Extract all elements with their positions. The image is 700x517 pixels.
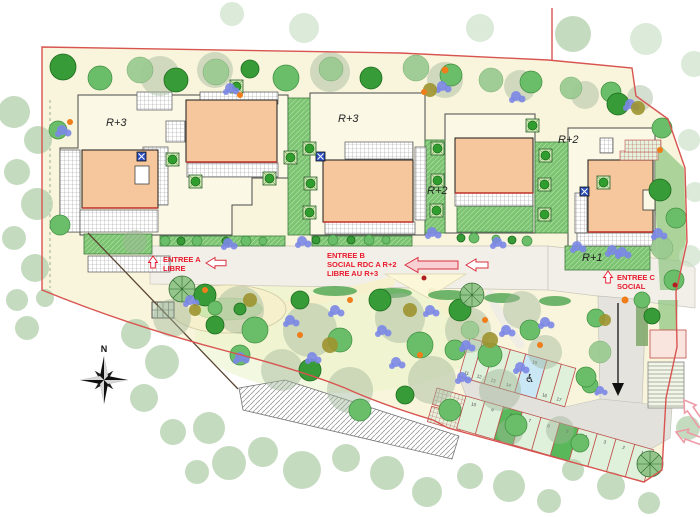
tree xyxy=(283,451,321,489)
tree xyxy=(599,314,611,326)
tree xyxy=(408,356,456,404)
tree xyxy=(164,68,188,92)
tree xyxy=(261,349,303,391)
tree xyxy=(493,470,525,502)
tree xyxy=(2,226,26,250)
tree xyxy=(248,437,278,467)
tree xyxy=(145,345,179,379)
tree xyxy=(160,236,170,246)
tree xyxy=(666,208,686,228)
tree xyxy=(241,236,251,246)
boundary-marker xyxy=(673,283,678,288)
site-plan-drawing: 11 12 13 14 15 16 17 ♿ 10 9 8 7 6 5 4 3 … xyxy=(0,0,700,517)
tree xyxy=(241,60,259,78)
tree xyxy=(630,23,662,55)
tree xyxy=(461,321,479,339)
tree xyxy=(328,235,338,245)
tree xyxy=(273,65,299,91)
tree xyxy=(189,304,201,316)
tree xyxy=(192,236,202,246)
tree xyxy=(571,434,589,452)
red-grid-strip xyxy=(620,151,658,160)
building-d-block xyxy=(455,138,533,193)
tree xyxy=(442,67,449,74)
tree xyxy=(482,332,498,348)
tree xyxy=(24,126,52,154)
annex-building xyxy=(650,330,686,358)
junction-marker xyxy=(422,276,427,281)
entrance-a-line1: ENTREE A xyxy=(163,255,201,264)
tree xyxy=(206,316,224,334)
tree xyxy=(15,316,39,340)
tree xyxy=(537,489,561,513)
tree xyxy=(651,237,673,259)
tree xyxy=(193,412,225,444)
tree xyxy=(649,179,671,201)
building-a-entry-notch xyxy=(135,166,149,184)
floor-label-c: R+3 xyxy=(338,113,359,125)
tree xyxy=(370,456,404,490)
tree xyxy=(243,293,257,307)
tree xyxy=(160,419,186,445)
red-grid-strip2 xyxy=(625,140,661,152)
tree xyxy=(622,297,629,304)
tree xyxy=(634,292,650,308)
tree xyxy=(360,67,382,89)
tree xyxy=(439,399,461,421)
tree xyxy=(522,236,532,246)
tree xyxy=(349,399,371,421)
tree xyxy=(555,16,591,52)
tree xyxy=(537,342,543,348)
tree xyxy=(21,254,49,282)
tree xyxy=(6,289,28,311)
tree xyxy=(185,460,209,484)
tree xyxy=(208,301,222,315)
entrance-c-line1: ENTREE C xyxy=(617,273,656,282)
tree xyxy=(123,230,147,254)
tree xyxy=(4,159,30,185)
entrance-b-line1: ENTREE B xyxy=(327,251,366,260)
tree xyxy=(589,341,611,363)
tree xyxy=(347,236,355,244)
tree xyxy=(121,319,151,349)
tree xyxy=(177,237,185,245)
tree xyxy=(417,352,423,358)
tree xyxy=(466,14,494,42)
tree xyxy=(657,147,663,153)
tree xyxy=(259,237,267,245)
tree xyxy=(508,236,516,244)
tree xyxy=(88,66,112,90)
tree xyxy=(469,233,479,243)
entrance-a-line2: LIBRE xyxy=(163,264,186,273)
tree xyxy=(382,236,390,244)
site-plan-page: 11 12 13 14 15 16 17 ♿ 10 9 8 7 6 5 4 3 … xyxy=(0,0,700,517)
tree xyxy=(482,317,488,323)
tree xyxy=(631,101,645,115)
tree xyxy=(403,55,429,81)
tree xyxy=(457,234,465,242)
tree xyxy=(369,289,391,311)
tree xyxy=(576,367,596,387)
tree xyxy=(528,335,562,369)
tree xyxy=(364,235,374,245)
tree xyxy=(479,369,521,411)
tree xyxy=(237,92,243,98)
tree xyxy=(312,236,320,244)
building-b-block xyxy=(186,100,277,162)
tree xyxy=(130,384,158,412)
tree xyxy=(520,320,540,340)
entrance-c-line2: SOCIAL xyxy=(617,282,646,291)
tree xyxy=(220,2,244,26)
tree xyxy=(50,54,76,80)
tree xyxy=(520,71,542,93)
tree xyxy=(678,129,700,151)
tree xyxy=(479,68,503,92)
tree xyxy=(289,13,319,43)
tree xyxy=(297,332,303,338)
tree xyxy=(242,317,268,343)
tree xyxy=(403,303,417,317)
tree xyxy=(203,59,229,85)
entrance-b-line3: LIBRE AU R+3 xyxy=(327,269,378,278)
north-label: N xyxy=(101,344,108,354)
tree xyxy=(505,414,527,436)
entrance-b-line2: SOCIAL RDC A R+2 xyxy=(327,260,397,269)
tree xyxy=(67,119,73,125)
tree xyxy=(332,444,360,472)
floor-label-a: R+3 xyxy=(106,117,127,129)
tree xyxy=(319,57,343,81)
tree xyxy=(291,291,309,309)
tree xyxy=(638,492,660,514)
tree xyxy=(347,297,353,303)
tree xyxy=(21,188,53,220)
tree xyxy=(560,77,582,99)
tree xyxy=(322,337,338,353)
tree xyxy=(50,215,70,235)
tree xyxy=(457,463,483,489)
tree xyxy=(202,287,208,293)
building-c-block xyxy=(323,160,413,222)
tree xyxy=(421,89,427,95)
tree xyxy=(644,308,660,324)
tree xyxy=(234,303,246,315)
floor-label-e: R+2 xyxy=(558,134,579,146)
tree xyxy=(546,416,574,444)
tree xyxy=(127,57,153,83)
floor-label-mid: R+2 xyxy=(427,185,448,197)
tree xyxy=(396,386,414,404)
floor-label-r1: R+1 xyxy=(582,252,603,264)
tree xyxy=(412,477,442,507)
tree xyxy=(212,446,246,480)
